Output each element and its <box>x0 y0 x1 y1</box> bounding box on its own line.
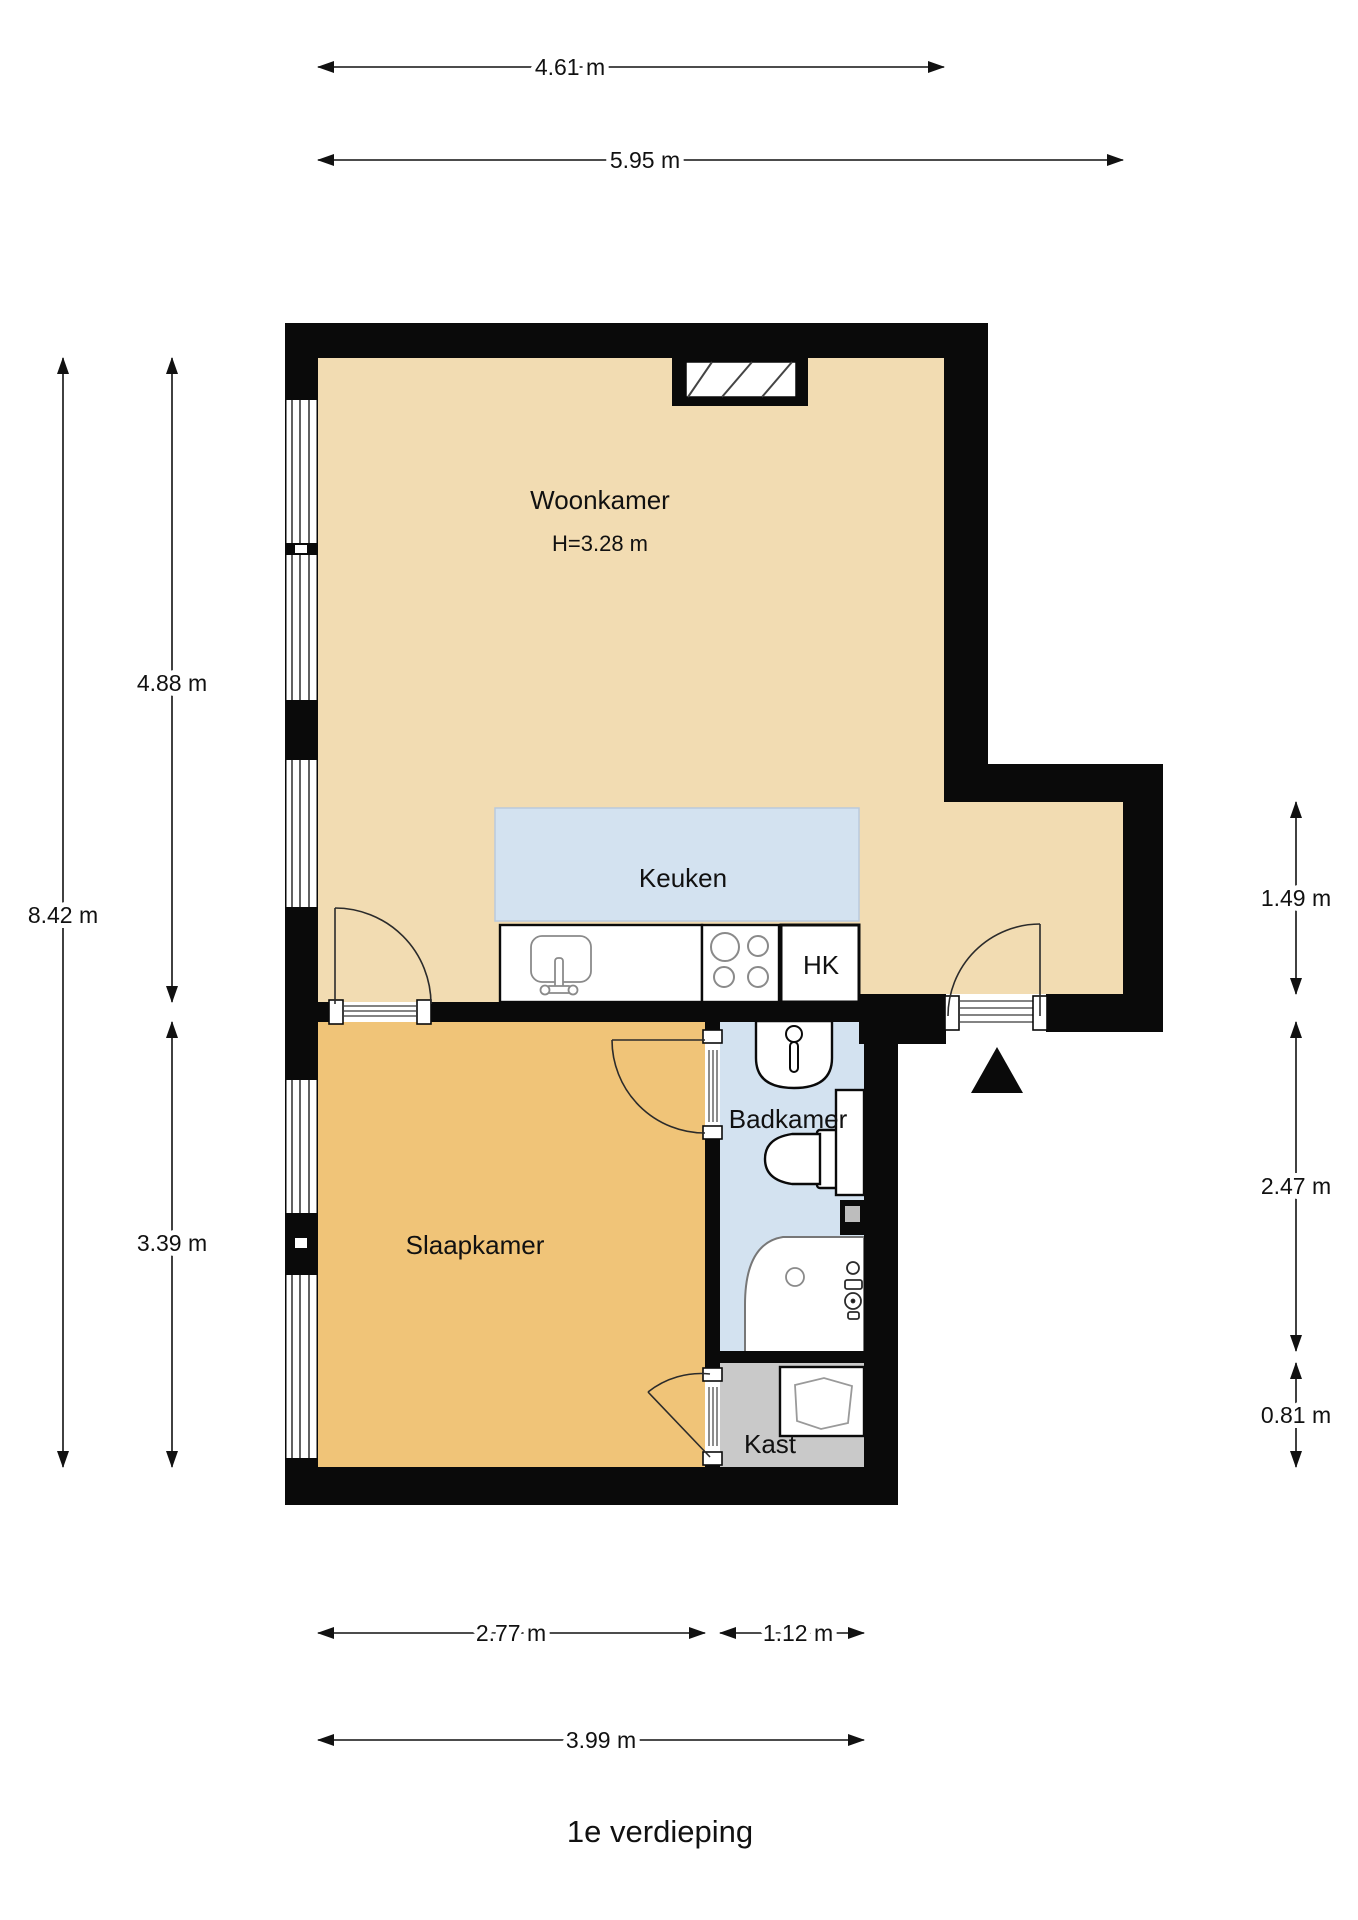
niche-hatch-box <box>686 362 796 397</box>
window-woonkamer-2 <box>287 555 317 700</box>
window-mullion-2-mark <box>295 1238 307 1248</box>
woonkamer-label: Woonkamer <box>530 485 670 515</box>
floor-title: 1e verdieping <box>567 1814 753 1849</box>
entrance-triangle-icon <box>971 1047 1023 1093</box>
wardrobe-box <box>780 1367 864 1436</box>
slaapkamer-label: Slaapkamer <box>406 1230 545 1260</box>
woonkamer-height-note: H=3.28 m <box>552 531 648 556</box>
wall-bottom <box>285 1467 898 1505</box>
toilet-icon <box>765 1130 838 1188</box>
dim-top-2-label: 5.95 m <box>610 147 680 173</box>
stove-unit <box>702 925 779 1002</box>
dim-left-1-label: 8.42 m <box>28 902 98 928</box>
duct-inner <box>845 1206 860 1222</box>
dim-right-3-label: 0.81 m <box>1261 1402 1331 1428</box>
window-slaapkamer-2 <box>287 1275 317 1458</box>
dim-left-3-label: 3.39 m <box>137 1230 207 1256</box>
dim-bottom-1-label: 2.77 m <box>476 1620 546 1646</box>
wall-bad-right <box>864 1022 898 1505</box>
wall-bad-left-b <box>705 1132 720 1376</box>
dim-right-1-label: 1.49 m <box>1261 885 1331 911</box>
kitchen-counter: HK <box>500 925 859 1002</box>
wall-middle <box>430 1002 864 1022</box>
floorplan-canvas: HK <box>0 0 1358 1920</box>
badkamer-label: Badkamer <box>729 1104 848 1134</box>
hk-label: HK <box>803 950 840 980</box>
dim-bottom-2-label: 1.12 m <box>763 1620 833 1646</box>
keuken-label: Keuken <box>639 863 727 893</box>
kast-label: Kast <box>744 1429 797 1459</box>
wall-entrance-right-block <box>1046 994 1163 1032</box>
wall-bad-kast <box>720 1351 864 1363</box>
window-slaapkamer-1 <box>287 1080 317 1213</box>
window-woonkamer-1 <box>287 400 317 545</box>
window-mullion-1-mark <box>295 545 307 553</box>
floorplan-page: HK <box>0 0 1358 1920</box>
dim-left-2-label: 4.88 m <box>137 670 207 696</box>
dim-right-2-label: 2.47 m <box>1261 1173 1331 1199</box>
window-woonkamer-3 <box>287 760 317 907</box>
shower-tray-icon <box>745 1237 864 1352</box>
floors <box>318 358 1123 1467</box>
wall-top <box>285 323 988 358</box>
dim-top-1-label: 4.61 m <box>535 54 605 80</box>
dim-bottom-3-label: 3.99 m <box>566 1727 636 1753</box>
